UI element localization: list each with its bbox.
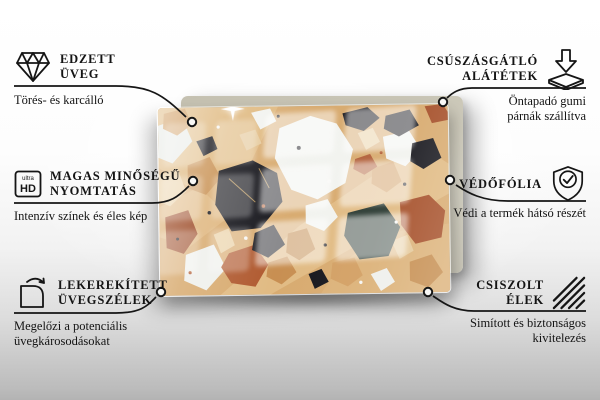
diamond-icon bbox=[14, 50, 52, 84]
callout-subtitle-line: Megelőzi a potenciális bbox=[14, 319, 168, 334]
terrazzo-artwork bbox=[158, 104, 451, 296]
callout-title-line: ÜVEG bbox=[60, 67, 116, 82]
glass-panel bbox=[157, 103, 452, 297]
callout-title-line: VÉDŐFÓLIA bbox=[459, 177, 542, 192]
callout-subtitle-line: kivitelezés bbox=[470, 331, 586, 346]
callout-polished-edges: CSISZOLT ÉLEK Simított és biztonságos ki… bbox=[470, 276, 586, 346]
callout-tempered-glass: EDZETT ÜVEG Törés- és karcálló bbox=[14, 50, 116, 108]
callout-title-line: LEKEREKÍTETT bbox=[58, 278, 168, 293]
callout-title-line: ALÁTÉTEK bbox=[427, 69, 538, 84]
callout-title-line: ÜVEGSZÉLEK bbox=[58, 293, 168, 308]
callout-title-line: CSÚSZÁSGÁTLÓ bbox=[427, 54, 538, 69]
callout-subtitle-line: üvegkárosodásokat bbox=[14, 334, 168, 349]
callout-anti-slip-pads: CSÚSZÁSGÁTLÓ ALÁTÉTEK Öntapadó gumi párn… bbox=[427, 52, 586, 124]
ultra-hd-icon-text-top: ultra bbox=[22, 176, 34, 182]
callout-protective-film: VÉDŐFÓLIA Védi a termék hátsó részét bbox=[453, 169, 586, 221]
callout-subtitle-line: Védi a termék hátsó részét bbox=[453, 206, 586, 221]
ultra-hd-icon-text-bottom: HD bbox=[20, 183, 36, 195]
callout-title-line: NYOMTATÁS bbox=[50, 184, 180, 199]
callout-subtitle-line: Törés- és karcálló bbox=[14, 93, 116, 108]
callout-title-line: EDZETT bbox=[60, 52, 116, 67]
callout-subtitle-line: párnák szállítva bbox=[427, 109, 586, 124]
callout-subtitle-line: Intenzív színek és éles kép bbox=[14, 209, 180, 224]
rounded-corner-icon bbox=[14, 275, 50, 311]
shield-check-icon bbox=[550, 165, 586, 203]
callout-rounded-glass-edges: LEKEREKÍTETT ÜVEGSZÉLEK Megelőzi a poten… bbox=[14, 275, 168, 349]
callout-title-line: CSISZOLT bbox=[476, 278, 544, 293]
anti-slip-pad-icon bbox=[546, 48, 586, 90]
callout-high-quality-print: ultra HD MAGAS MINŐSÉGŰ NYOMTATÁS Intenz… bbox=[14, 167, 180, 224]
callout-title-line: ÉLEK bbox=[476, 293, 544, 308]
callout-title-line: MAGAS MINŐSÉGŰ bbox=[50, 169, 180, 184]
callout-subtitle-line: Öntapadó gumi bbox=[427, 94, 586, 109]
callout-subtitle-line: Simított és biztonságos bbox=[470, 316, 586, 331]
ultra-hd-icon: ultra HD bbox=[14, 170, 42, 198]
product-feature-infographic: EDZETT ÜVEG Törés- és karcálló ultra HD … bbox=[0, 0, 600, 400]
polished-edges-icon bbox=[552, 276, 586, 310]
